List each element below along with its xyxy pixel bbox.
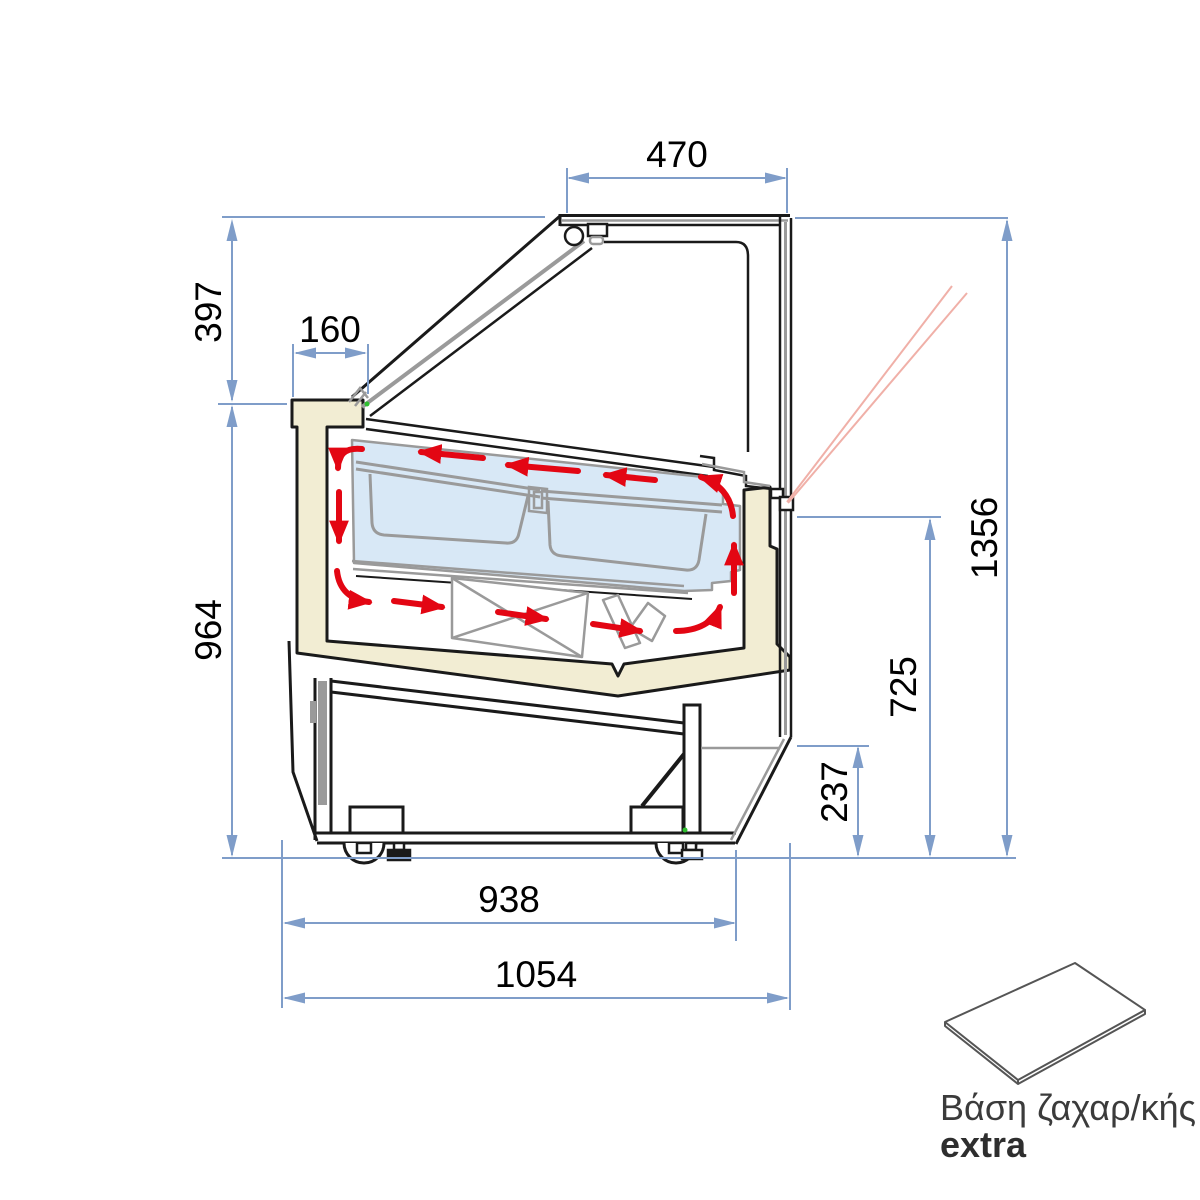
dim-total-depth-label: 1054 bbox=[495, 954, 577, 995]
dim-lid-height-label: 397 bbox=[188, 281, 229, 343]
dim-back-ledge-label: 160 bbox=[299, 309, 361, 350]
dimension-drawing: 470 397 160 964 bbox=[0, 0, 1200, 1200]
marker-dot-green bbox=[365, 402, 370, 407]
dim-base-height-label: 237 bbox=[814, 761, 855, 823]
extra-part-tag: extra bbox=[940, 1124, 1027, 1165]
dim-base-width-label: 938 bbox=[478, 879, 540, 920]
marker-dot-green bbox=[683, 828, 688, 833]
diagram-canvas: 470 397 160 964 bbox=[0, 0, 1200, 1200]
extra-part-caption: Βάση ζαχαρ/κής bbox=[940, 1087, 1196, 1128]
dim-total-height-label: 1356 bbox=[964, 497, 1005, 579]
dim-body-height-label: 964 bbox=[188, 599, 229, 661]
dim-top-opening-label: 470 bbox=[646, 134, 708, 175]
dim-front-glass-height-label: 725 bbox=[883, 656, 924, 718]
